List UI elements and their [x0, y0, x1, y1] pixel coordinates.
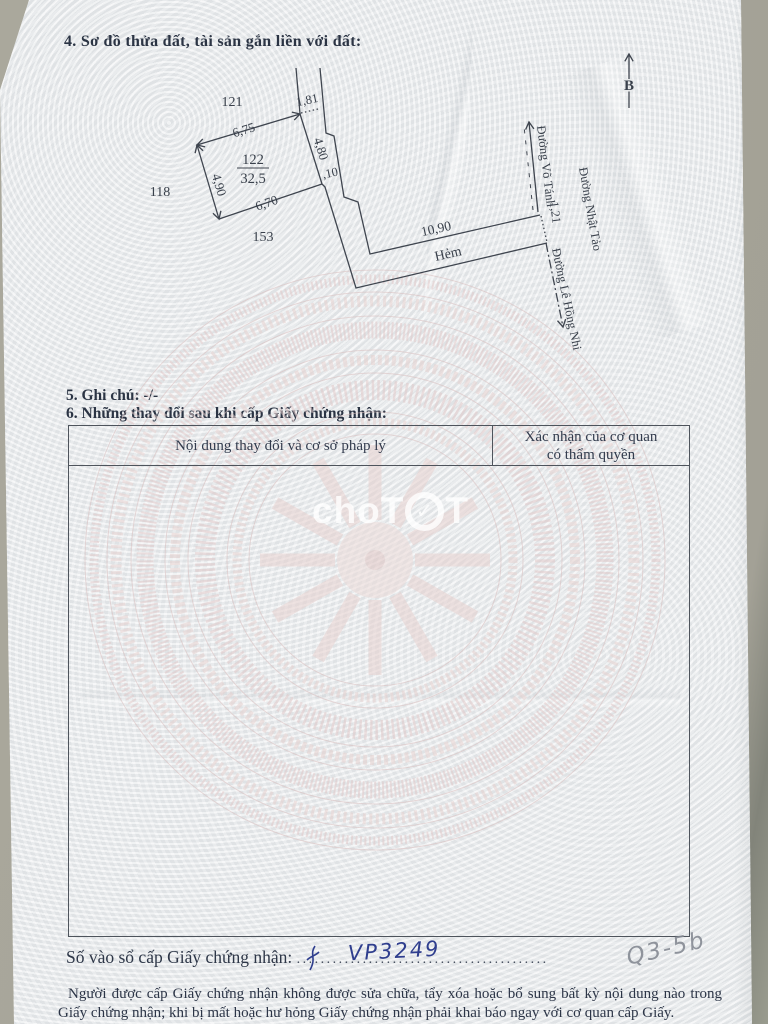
handwritten-mark	[304, 943, 322, 973]
parcel-area-label: 32,5	[240, 171, 265, 187]
parcel-bottom-label: 153	[253, 230, 274, 245]
chotot-watermark: choT✓T	[312, 490, 469, 532]
col-confirm-header-line2: có thẩm quyền	[547, 446, 635, 464]
col-confirm-header: Xác nhận của cơ quan có thẩm quyền	[493, 426, 689, 465]
street-nhat-tao-label: Đường Nhật Tảo	[576, 166, 604, 252]
dim-top-edge: 6,75	[231, 119, 257, 140]
parcel-number-label: 122	[242, 152, 264, 168]
check-glyph: ✓	[416, 499, 435, 524]
registry-label: Số vào sổ cấp Giấy chứng nhận:	[66, 947, 292, 967]
parcel-left-label: 118	[150, 185, 170, 200]
legal-notice: Người được cấp Giấy chứng nhận không đượ…	[58, 985, 722, 1023]
north-label: B	[624, 78, 634, 94]
chotot-watermark-t2: T	[445, 490, 469, 532]
chotot-watermark-check-icon: ✓	[405, 492, 444, 531]
parcel-top-label: 121	[222, 95, 243, 110]
col-content-header-text: Nội dung thay đổi và cơ sở pháp lý	[175, 437, 386, 455]
registry-line: Số vào sổ cấp Giấy chứng nhận: .........…	[66, 947, 549, 968]
registry-number-handwriting: VP3249	[347, 937, 441, 966]
street-vo-tanh-label: Đường Võ Tánh	[534, 125, 558, 209]
dim-bottom-edge: 6,70	[253, 192, 279, 214]
col-confirm-header-line1: Xác nhận của cơ quan	[525, 428, 658, 446]
col-content-header: Nội dung thay đổi và cơ sở pháp lý	[69, 426, 493, 465]
changes-table-header: Nội dung thay đổi và cơ sở pháp lý Xác n…	[69, 426, 689, 466]
dim-step: ,10	[321, 165, 339, 182]
document-page: 4. Sơ đồ thửa đất, tài sản gắn liền với …	[0, 0, 768, 1024]
chotot-watermark-t1: T	[381, 490, 405, 532]
chotot-watermark-prefix: cho	[312, 490, 381, 532]
photo-background: 4. Sơ đồ thửa đất, tài sản gắn liền với …	[0, 0, 768, 1024]
street-le-hong-nhi-label: Đường Lê Hồng Nhi	[549, 247, 584, 352]
parcel-diagram: B 121 118 153 122 32,5 6,75 4,90 6,70 4,…	[0, 0, 768, 400]
alley-label: Hẻm	[433, 244, 463, 265]
